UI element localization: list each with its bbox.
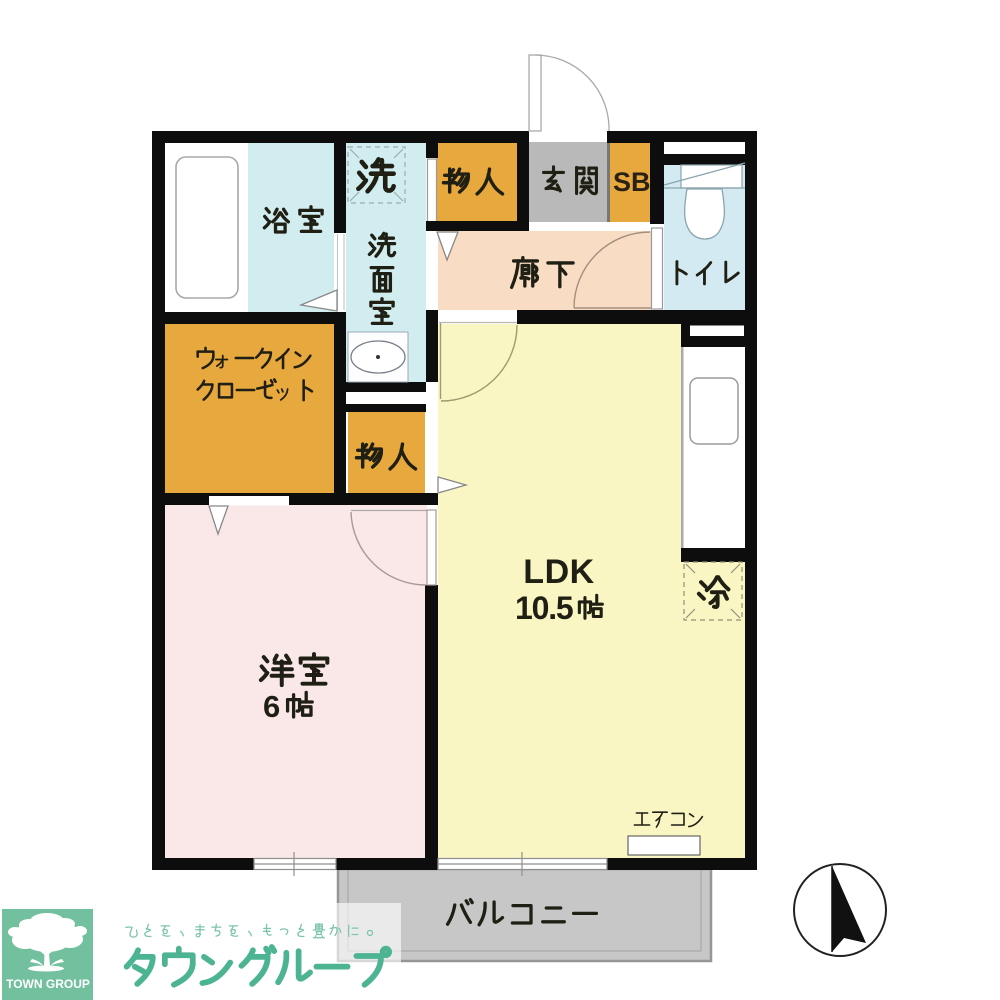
svg-text:TOWN GROUP: TOWN GROUP <box>6 977 90 991</box>
svg-text:6: 6 <box>263 689 280 724</box>
svg-text:LDK: LDK <box>523 553 594 591</box>
svg-text:10.5: 10.5 <box>515 590 573 626</box>
svg-text:SB: SB <box>613 167 651 197</box>
